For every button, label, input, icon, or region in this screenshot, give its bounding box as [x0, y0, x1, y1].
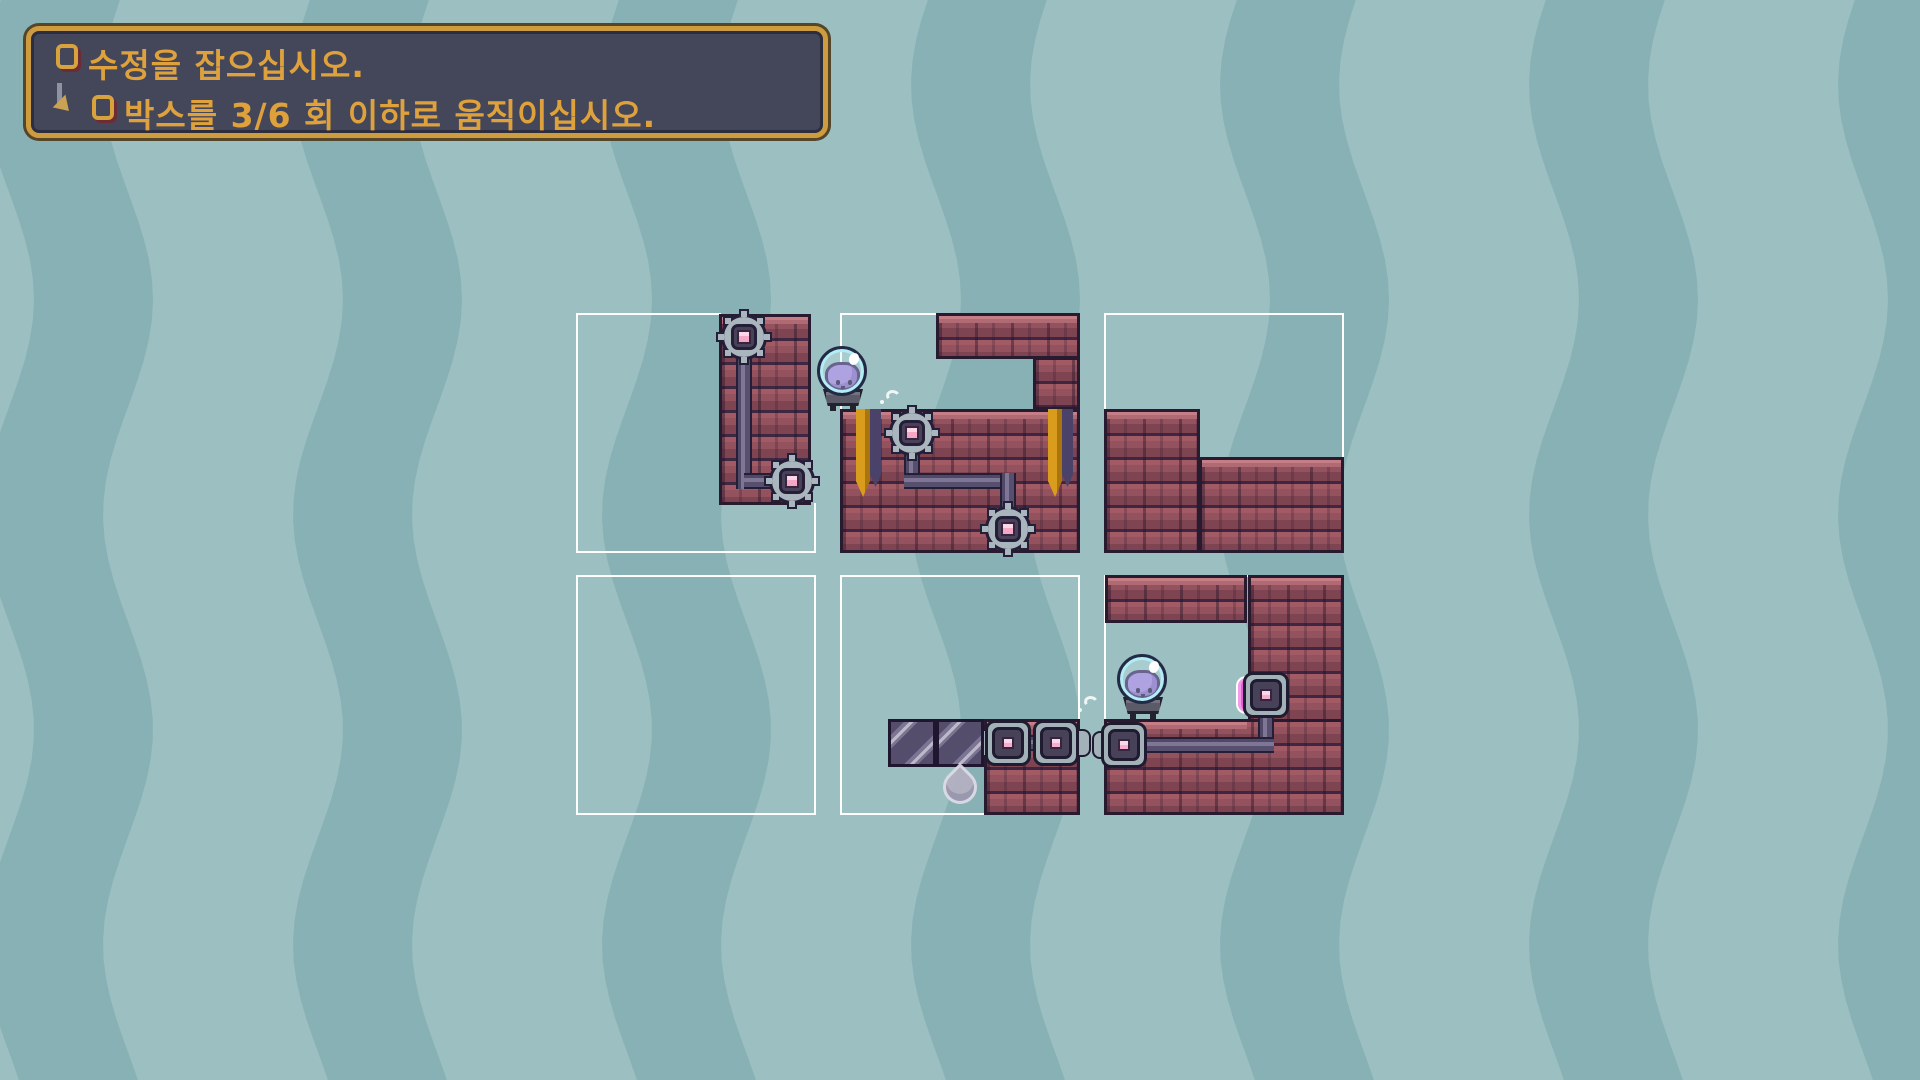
gold-banner-right	[1048, 409, 1062, 497]
room-a-outline-bottom	[576, 551, 816, 553]
objective-2-text: 박스를 3/6 회 이하로 움직이십시오.	[124, 89, 656, 137]
banner-shadow-right	[1062, 409, 1073, 487]
gear-node-pink-gem	[785, 474, 799, 488]
square-port-pink-gem	[1260, 689, 1272, 701]
sparkle-dot	[1078, 708, 1082, 712]
square-port-pink-gem	[1050, 737, 1062, 749]
square-port-room-e-left	[985, 720, 1031, 766]
gear-node-room-a-bottom	[766, 455, 818, 507]
movable-box-1[interactable]	[888, 719, 936, 767]
objective-2-checkbox-icon	[92, 95, 114, 120]
square-port-room-e-right	[1033, 720, 1079, 766]
gear-node-room-b-bottom	[982, 503, 1034, 555]
slime-helmet	[1117, 654, 1167, 704]
gear-node-pink-gem	[905, 426, 919, 440]
gold-banner-left	[856, 409, 870, 497]
game-stage: 수정을 잡으십시오. 박스를 3/6 회 이하로 움직이십시오.	[0, 0, 1920, 1080]
slime-helmet	[817, 346, 867, 396]
room-d-outline	[576, 575, 816, 815]
objective-1-checkbox-icon	[56, 44, 78, 69]
gear-node-room-a-top	[718, 311, 770, 363]
objective-1-text: 수정을 잡으십시오.	[88, 39, 365, 87]
slime-character-room-f[interactable]	[1117, 654, 1169, 720]
room-a-outline-left	[576, 313, 578, 553]
sparkle-dot	[880, 400, 884, 404]
objective-panel: 수정을 잡으십시오. 박스를 3/6 회 이하로 움직이십시오.	[26, 26, 828, 138]
gear-node-pink-gem	[737, 330, 751, 344]
slime-character-room-b[interactable]	[817, 346, 869, 412]
brick-top-bar-room-b	[936, 313, 1080, 359]
brick-top-bar-room-f	[1105, 575, 1247, 623]
room-a-outline-right	[814, 503, 816, 553]
square-port-room-f-right	[1243, 672, 1289, 718]
brick-column-room-c	[1104, 409, 1200, 553]
brick-platform-room-c	[1199, 457, 1344, 553]
square-port-room-f-left	[1101, 722, 1147, 768]
gear-node-pink-gem	[1001, 522, 1015, 536]
banner-shadow-left	[870, 409, 881, 487]
slime-leg	[1150, 713, 1156, 719]
slime-leg	[830, 405, 836, 411]
square-port-pink-gem	[1118, 739, 1130, 751]
movable-box-2[interactable]	[936, 719, 984, 767]
slime-leg	[1130, 713, 1136, 719]
slime-leg	[850, 405, 856, 411]
room-a-outline-top	[576, 313, 721, 315]
brick-step-room-b	[1033, 357, 1080, 410]
gear-node-room-b-top	[886, 407, 938, 459]
square-port-pink-gem	[1002, 737, 1014, 749]
port-flange-right	[1079, 729, 1091, 757]
